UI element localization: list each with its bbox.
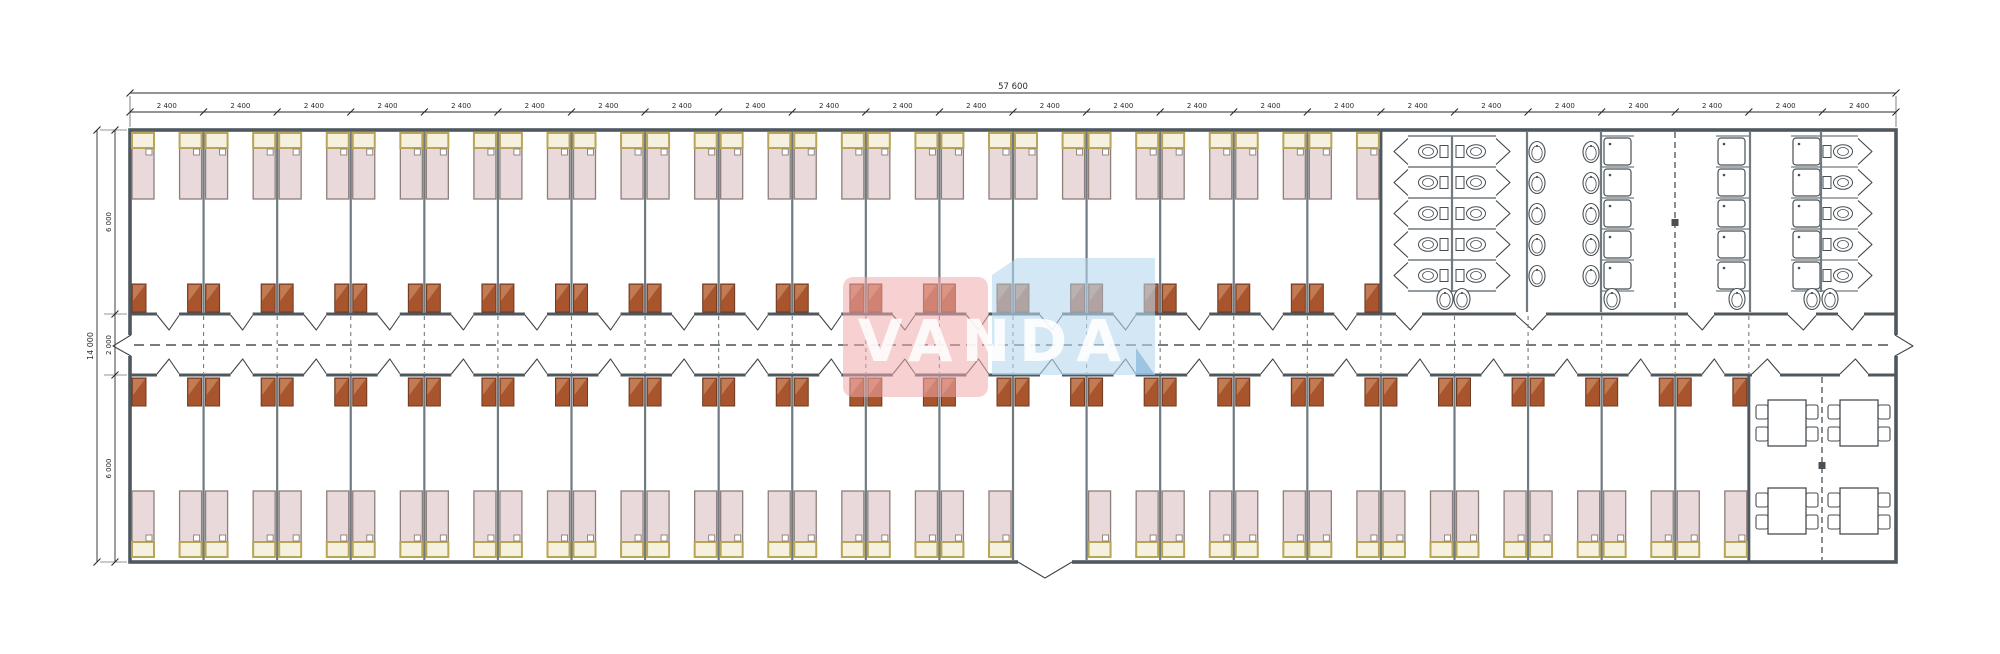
module-dim-label: 2 400 xyxy=(378,102,398,110)
bed-pillow xyxy=(279,542,301,557)
vanda-logo-text: VANDA xyxy=(858,307,1130,375)
module-dim-label: 2 400 xyxy=(893,102,913,110)
bed-pillow xyxy=(1063,133,1085,148)
module-dim-label: 2 400 xyxy=(966,102,986,110)
overall-height-dim-label: 14 000 xyxy=(86,332,95,360)
toilet-bowl xyxy=(1834,269,1853,283)
blanket-fold xyxy=(1323,535,1329,541)
shower-drain xyxy=(1723,174,1726,177)
blanket-fold xyxy=(194,535,200,541)
bed-pillow xyxy=(1210,542,1232,557)
door-opening xyxy=(672,312,694,316)
shower-drain xyxy=(1723,236,1726,239)
washbasin-tap xyxy=(1536,238,1538,240)
blanket-fold xyxy=(1592,535,1598,541)
washbasin xyxy=(1437,289,1453,310)
shower-cubicle xyxy=(1604,231,1631,258)
bed-pillow xyxy=(180,133,202,148)
bed-pillow xyxy=(400,542,422,557)
blanket-fold xyxy=(808,535,814,541)
wc-stall-door xyxy=(1496,139,1510,165)
wc-stall-door xyxy=(1858,139,1872,165)
door-opening xyxy=(525,373,547,377)
toilet-bowl xyxy=(1834,145,1853,159)
shower-drain xyxy=(1723,143,1726,146)
washbasin-tap xyxy=(1590,269,1592,271)
door-opening xyxy=(1396,312,1422,316)
toilet-tank xyxy=(1823,239,1831,251)
shower-cubicle xyxy=(1718,231,1745,258)
chair xyxy=(1756,405,1768,419)
blanket-fold xyxy=(267,535,273,541)
bed-pillow xyxy=(1604,542,1626,557)
sanitary-door-swing xyxy=(1788,315,1816,330)
blanket-fold xyxy=(1297,535,1303,541)
blanket-fold xyxy=(1029,149,1035,155)
door-opening xyxy=(1261,373,1283,377)
bed-pillow xyxy=(1530,542,1552,557)
door-opening xyxy=(1629,373,1651,377)
toilet-bowl xyxy=(1467,207,1486,221)
shower-drain xyxy=(1609,174,1612,177)
module-dim-label: 2 400 xyxy=(672,102,692,110)
washbasin-tap xyxy=(1461,292,1463,294)
bed-pillow xyxy=(253,133,275,148)
door-opening xyxy=(672,373,694,377)
toilet-bowl xyxy=(1834,207,1853,221)
blanket-fold xyxy=(955,149,961,155)
room-door-swing-bottom xyxy=(746,359,768,374)
door-opening xyxy=(1334,312,1356,316)
bed-pillow xyxy=(794,542,816,557)
room-door-swing-top xyxy=(672,315,694,330)
module-dim-label: 2 400 xyxy=(304,102,324,110)
door-opening xyxy=(1408,373,1430,377)
toilet-tank xyxy=(1456,146,1464,158)
module-dim-label: 2 400 xyxy=(1408,102,1428,110)
toilet-bowl xyxy=(1419,176,1438,190)
bed-pillow xyxy=(548,542,570,557)
door-opening xyxy=(304,373,326,377)
blanket-fold xyxy=(220,149,226,155)
shower-cubicle xyxy=(1604,200,1631,227)
chair xyxy=(1878,515,1890,529)
bed-pillow xyxy=(1357,133,1379,148)
blanket-fold xyxy=(514,149,520,155)
door-opening xyxy=(1752,373,1780,377)
room-door-swing-bottom xyxy=(1187,359,1209,374)
chair xyxy=(1806,493,1818,507)
toilet-tank xyxy=(1440,270,1448,282)
washbasin xyxy=(1529,204,1545,225)
washbasin-tap xyxy=(1536,269,1538,271)
door-opening xyxy=(451,312,473,316)
toilet-tank xyxy=(1823,146,1831,158)
blanket-fold xyxy=(1250,535,1256,541)
chair xyxy=(1828,493,1840,507)
bed-pillow xyxy=(474,133,496,148)
shower-drain xyxy=(1723,205,1726,208)
toilet-bowl xyxy=(1467,269,1486,283)
blanket-fold xyxy=(955,535,961,541)
room-door-swing-top xyxy=(1334,315,1356,330)
chair xyxy=(1756,493,1768,507)
room-door-swing-top xyxy=(1261,315,1283,330)
toilet-tank xyxy=(1440,208,1448,220)
blanket-fold xyxy=(1518,535,1524,541)
blanket-fold xyxy=(267,149,273,155)
door-opening xyxy=(1187,373,1209,377)
blanket-fold xyxy=(1544,535,1550,541)
room-door-swing-top xyxy=(231,315,253,330)
bed-pillow xyxy=(253,542,275,557)
bed-pillow xyxy=(426,542,448,557)
blanket-fold xyxy=(488,149,494,155)
toilet-tank xyxy=(1823,177,1831,189)
shower-cubicle xyxy=(1604,262,1631,289)
washbasin xyxy=(1583,142,1599,163)
toilet-bowl xyxy=(1419,238,1438,252)
bed-pillow xyxy=(941,133,963,148)
door-opening xyxy=(1688,312,1714,316)
height-top-dim-label: 6 000 xyxy=(105,212,113,232)
blanket-fold xyxy=(562,535,568,541)
room-door-swing-bottom xyxy=(1334,359,1356,374)
bed-pillow xyxy=(1651,542,1673,557)
chair xyxy=(1828,405,1840,419)
door-opening xyxy=(1482,373,1504,377)
bed-pillow xyxy=(353,133,375,148)
shower-cubicle xyxy=(1718,200,1745,227)
bed-pillow xyxy=(1089,542,1111,557)
wc-stall-door xyxy=(1858,232,1872,258)
door-opening xyxy=(1261,312,1283,316)
wc-stall-door xyxy=(1394,232,1408,258)
shower-cubicle xyxy=(1793,138,1820,165)
bed-pillow xyxy=(989,133,1011,148)
bed-pillow xyxy=(474,542,496,557)
toilet-tank xyxy=(1456,177,1464,189)
shower-drain xyxy=(1798,143,1801,146)
blanket-fold xyxy=(782,535,788,541)
wc-stall-door xyxy=(1858,201,1872,227)
door-opening xyxy=(157,373,179,377)
chair xyxy=(1878,427,1890,441)
height-corridor-dim-label: 2 000 xyxy=(105,335,113,355)
bed-pillow xyxy=(721,133,743,148)
door-opening xyxy=(819,373,841,377)
washbasin-tap xyxy=(1590,176,1592,178)
shower-drain xyxy=(1609,236,1612,239)
chair xyxy=(1756,515,1768,529)
bed-pillow xyxy=(768,542,790,557)
washbasin-tap xyxy=(1536,207,1538,209)
bed-pillow xyxy=(695,542,717,557)
washbasin xyxy=(1583,266,1599,287)
blanket-fold xyxy=(1224,535,1230,541)
wc-stall-door xyxy=(1858,263,1872,289)
room-door-swing-bottom xyxy=(451,359,473,374)
bed-pillow xyxy=(1162,542,1184,557)
blanket-fold xyxy=(514,535,520,541)
bed-pillow xyxy=(1136,133,1158,148)
door-opening xyxy=(1840,373,1868,377)
washbasin xyxy=(1583,173,1599,194)
blanket-fold xyxy=(882,149,888,155)
bed-pillow xyxy=(1162,133,1184,148)
bed-pillow xyxy=(132,542,154,557)
toilet-tank xyxy=(1440,177,1448,189)
blanket-fold xyxy=(194,149,200,155)
room-door-swing-bottom xyxy=(157,359,179,374)
dining-table xyxy=(1840,400,1878,446)
door-opening xyxy=(378,312,400,316)
blanket-fold xyxy=(661,535,667,541)
sanitary-door-swing xyxy=(1688,315,1714,330)
room-door-swing-bottom xyxy=(1261,359,1283,374)
toilet-tank xyxy=(1440,239,1448,251)
door-opening xyxy=(746,373,768,377)
module-dim-label: 2 400 xyxy=(819,102,839,110)
shower-drain xyxy=(1723,267,1726,270)
bed-pillow xyxy=(1578,542,1600,557)
module-dim-label: 2 400 xyxy=(1555,102,1575,110)
shower-drain xyxy=(1798,174,1801,177)
blanket-fold xyxy=(1323,149,1329,155)
blanket-fold xyxy=(1003,149,1009,155)
height-bottom-dim-label: 6 000 xyxy=(105,458,113,478)
chair xyxy=(1828,515,1840,529)
washbasin-tap xyxy=(1590,207,1592,209)
door-opening xyxy=(746,312,768,316)
module-dim-label: 2 400 xyxy=(1040,102,1060,110)
bed-pillow xyxy=(1210,133,1232,148)
blanket-fold xyxy=(293,149,299,155)
blanket-fold xyxy=(440,535,446,541)
module-dim-label: 2 400 xyxy=(451,102,471,110)
bed-pillow xyxy=(327,542,349,557)
washbasin-tap xyxy=(1829,292,1831,294)
wc-stall-door xyxy=(1858,170,1872,196)
door-opening xyxy=(1838,312,1864,316)
washbasin-tap xyxy=(1611,292,1613,294)
bed-pillow xyxy=(1283,542,1305,557)
shower-cubicle xyxy=(1793,169,1820,196)
bed-pillow xyxy=(1504,542,1526,557)
washbasin-tap xyxy=(1536,145,1538,147)
bed-pillow xyxy=(941,542,963,557)
washbasin xyxy=(1604,289,1620,310)
bed-pillow xyxy=(621,133,643,148)
shower-drain xyxy=(1798,205,1801,208)
room-door-swing-bottom xyxy=(599,359,621,374)
toilet-bowl xyxy=(1419,207,1438,221)
bed-pillow xyxy=(353,542,375,557)
module-dim-label: 2 400 xyxy=(1702,102,1722,110)
wc-stall-door xyxy=(1496,201,1510,227)
shower-cubicle xyxy=(1793,200,1820,227)
bed-pillow xyxy=(500,542,522,557)
bed-pillow xyxy=(1383,542,1405,557)
washbasin xyxy=(1583,235,1599,256)
washbasin xyxy=(1729,289,1745,310)
blanket-fold xyxy=(588,535,594,541)
bed-pillow xyxy=(989,542,1011,557)
blanket-fold xyxy=(1371,149,1377,155)
shower-cubicle xyxy=(1718,262,1745,289)
dining-table xyxy=(1840,488,1878,534)
door-opening xyxy=(1555,373,1577,377)
room-door-swing-top xyxy=(525,315,547,330)
bed-pillow xyxy=(1431,542,1453,557)
bed-pillow xyxy=(574,542,596,557)
room-door-swing-top xyxy=(746,315,768,330)
bed-pillow xyxy=(1236,133,1258,148)
door-opening xyxy=(1893,335,1900,356)
module-dim-label: 2 400 xyxy=(745,102,765,110)
toilet-bowl xyxy=(1834,176,1853,190)
blanket-fold xyxy=(1471,535,1477,541)
blanket-fold xyxy=(367,149,373,155)
blanket-fold xyxy=(1250,149,1256,155)
room-door-swing-bottom xyxy=(1702,359,1724,374)
blanket-fold xyxy=(1371,535,1377,541)
module-dim-label: 2 400 xyxy=(1113,102,1133,110)
bed-pillow xyxy=(132,133,154,148)
floor-plan-canvas: 57 6002 4002 4002 4002 4002 4002 4002 40… xyxy=(0,0,2000,654)
washbasin-tap xyxy=(1736,292,1738,294)
room-door-swing-bottom xyxy=(304,359,326,374)
door-opening xyxy=(451,373,473,377)
blanket-fold xyxy=(1103,149,1109,155)
blanket-fold xyxy=(414,535,420,541)
bed-pillow xyxy=(1136,542,1158,557)
bed-pillow xyxy=(842,542,864,557)
bed-pillow xyxy=(695,133,717,148)
shower-cubicle xyxy=(1718,138,1745,165)
bed-pillow xyxy=(1089,133,1111,148)
room-door-swing-bottom xyxy=(231,359,253,374)
blanket-fold xyxy=(635,535,641,541)
module-dim-label: 2 400 xyxy=(525,102,545,110)
room-door-swing-top xyxy=(1187,315,1209,330)
shower-drain xyxy=(1798,267,1801,270)
washbasin-tap xyxy=(1444,292,1446,294)
washbasin xyxy=(1804,289,1820,310)
blanket-fold xyxy=(562,149,568,155)
shower-cubicle xyxy=(1793,262,1820,289)
bed-pillow xyxy=(647,133,669,148)
washbasin-tap xyxy=(1536,176,1538,178)
blanket-fold xyxy=(1665,535,1671,541)
dining-table xyxy=(1768,488,1806,534)
module-dim-label: 2 400 xyxy=(1849,102,1869,110)
washbasin-tap xyxy=(1590,238,1592,240)
module-dim-label: 2 400 xyxy=(1776,102,1796,110)
door-opening xyxy=(378,373,400,377)
blanket-fold xyxy=(929,149,935,155)
chair xyxy=(1828,427,1840,441)
sanitary-door-swing xyxy=(1516,315,1546,330)
blanket-fold xyxy=(1150,149,1156,155)
blanket-fold xyxy=(856,149,862,155)
bed-pillow xyxy=(621,542,643,557)
toilet-bowl xyxy=(1419,269,1438,283)
door-opening xyxy=(819,312,841,316)
blanket-fold xyxy=(220,535,226,541)
blanket-fold xyxy=(367,535,373,541)
module-dim-label: 2 400 xyxy=(157,102,177,110)
wc-stall-door xyxy=(1394,263,1408,289)
module-dim-label: 2 400 xyxy=(230,102,250,110)
wc-stall-door xyxy=(1496,232,1510,258)
room-door-swing-top xyxy=(451,315,473,330)
bed-pillow xyxy=(327,133,349,148)
blanket-fold xyxy=(735,535,741,541)
bed-pillow xyxy=(1015,133,1037,148)
bed-pillow xyxy=(206,542,228,557)
shower-drain xyxy=(1609,267,1612,270)
blanket-fold xyxy=(661,149,667,155)
washbasin xyxy=(1529,142,1545,163)
blanket-fold xyxy=(929,535,935,541)
shower-cubicle xyxy=(1604,138,1631,165)
blanket-fold xyxy=(635,149,641,155)
module-dim-label: 2 400 xyxy=(1187,102,1207,110)
toilet-bowl xyxy=(1419,145,1438,159)
washbasin-tap xyxy=(1590,145,1592,147)
blanket-fold xyxy=(414,149,420,155)
shower-drain xyxy=(1798,236,1801,239)
blanket-fold xyxy=(1003,535,1009,541)
module-dim-label: 2 400 xyxy=(598,102,618,110)
door-opening xyxy=(599,312,621,316)
room-door-swing-top xyxy=(819,315,841,330)
partition-post xyxy=(1672,219,1679,226)
blanket-fold xyxy=(1397,535,1403,541)
chair xyxy=(1756,427,1768,441)
toilet-tank xyxy=(1456,239,1464,251)
shower-cubicle xyxy=(1793,231,1820,258)
partition-post xyxy=(1819,462,1826,469)
bed-pillow xyxy=(574,133,596,148)
toilet-tank xyxy=(1823,270,1831,282)
chair xyxy=(1806,405,1818,419)
bed-pillow xyxy=(868,133,890,148)
washbasin xyxy=(1454,289,1470,310)
door-opening xyxy=(1788,312,1816,316)
blanket-fold xyxy=(1176,149,1182,155)
bed-pillow xyxy=(1283,133,1305,148)
blanket-fold xyxy=(856,535,862,541)
room-door-swing-bottom xyxy=(672,359,694,374)
bed-pillow xyxy=(915,133,937,148)
washbasin xyxy=(1529,235,1545,256)
blanket-fold xyxy=(146,535,152,541)
bed-pillow xyxy=(548,133,570,148)
room-door-swing-top xyxy=(157,315,179,330)
blanket-fold xyxy=(440,149,446,155)
door-opening xyxy=(157,312,179,316)
room-door-swing-bottom xyxy=(1482,359,1504,374)
room-door-swing-bottom xyxy=(1629,359,1651,374)
blanket-fold xyxy=(1103,535,1109,541)
room-door-swing-bottom xyxy=(378,359,400,374)
bed-pillow xyxy=(426,133,448,148)
washbasin xyxy=(1583,204,1599,225)
blanket-fold xyxy=(341,149,347,155)
sanitary-door-swing xyxy=(1838,315,1864,330)
